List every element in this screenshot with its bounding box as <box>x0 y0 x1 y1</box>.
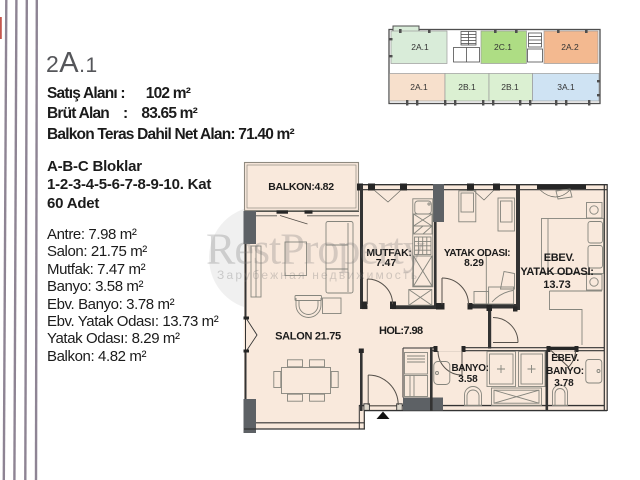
svg-text:BANYO:: BANYO: <box>546 366 584 377</box>
svg-text:EBEV.: EBEV. <box>551 353 579 364</box>
svg-text:RestProperty: RestProperty <box>206 225 425 274</box>
svg-text:13.73: 13.73 <box>543 279 571 291</box>
svg-text:3A.1: 3A.1 <box>557 82 575 92</box>
svg-text:HOL:7.98: HOL:7.98 <box>379 325 423 337</box>
svg-text:3.58: 3.58 <box>458 374 478 385</box>
svg-text:2B.1: 2B.1 <box>458 82 476 92</box>
svg-text:2A.2: 2A.2 <box>561 42 579 52</box>
svg-text:8.29: 8.29 <box>464 258 484 269</box>
svg-text:BALKON:4.82: BALKON:4.82 <box>268 181 334 193</box>
svg-text:2A.1: 2A.1 <box>410 82 428 92</box>
svg-text:SALON 21.75: SALON 21.75 <box>275 331 341 343</box>
svg-text:EBEV.: EBEV. <box>544 252 575 264</box>
svg-text:Зарубежная недвижимость: Зарубежная недвижимость <box>217 268 419 282</box>
svg-text:2A.1: 2A.1 <box>411 42 429 52</box>
svg-text:YATAK ODASI:: YATAK ODASI: <box>520 266 593 278</box>
svg-text:2C.1: 2C.1 <box>494 42 512 52</box>
svg-text:3.78: 3.78 <box>554 378 574 389</box>
svg-text:2B.1: 2B.1 <box>501 82 519 92</box>
svg-text:BANYO:: BANYO: <box>451 363 488 374</box>
